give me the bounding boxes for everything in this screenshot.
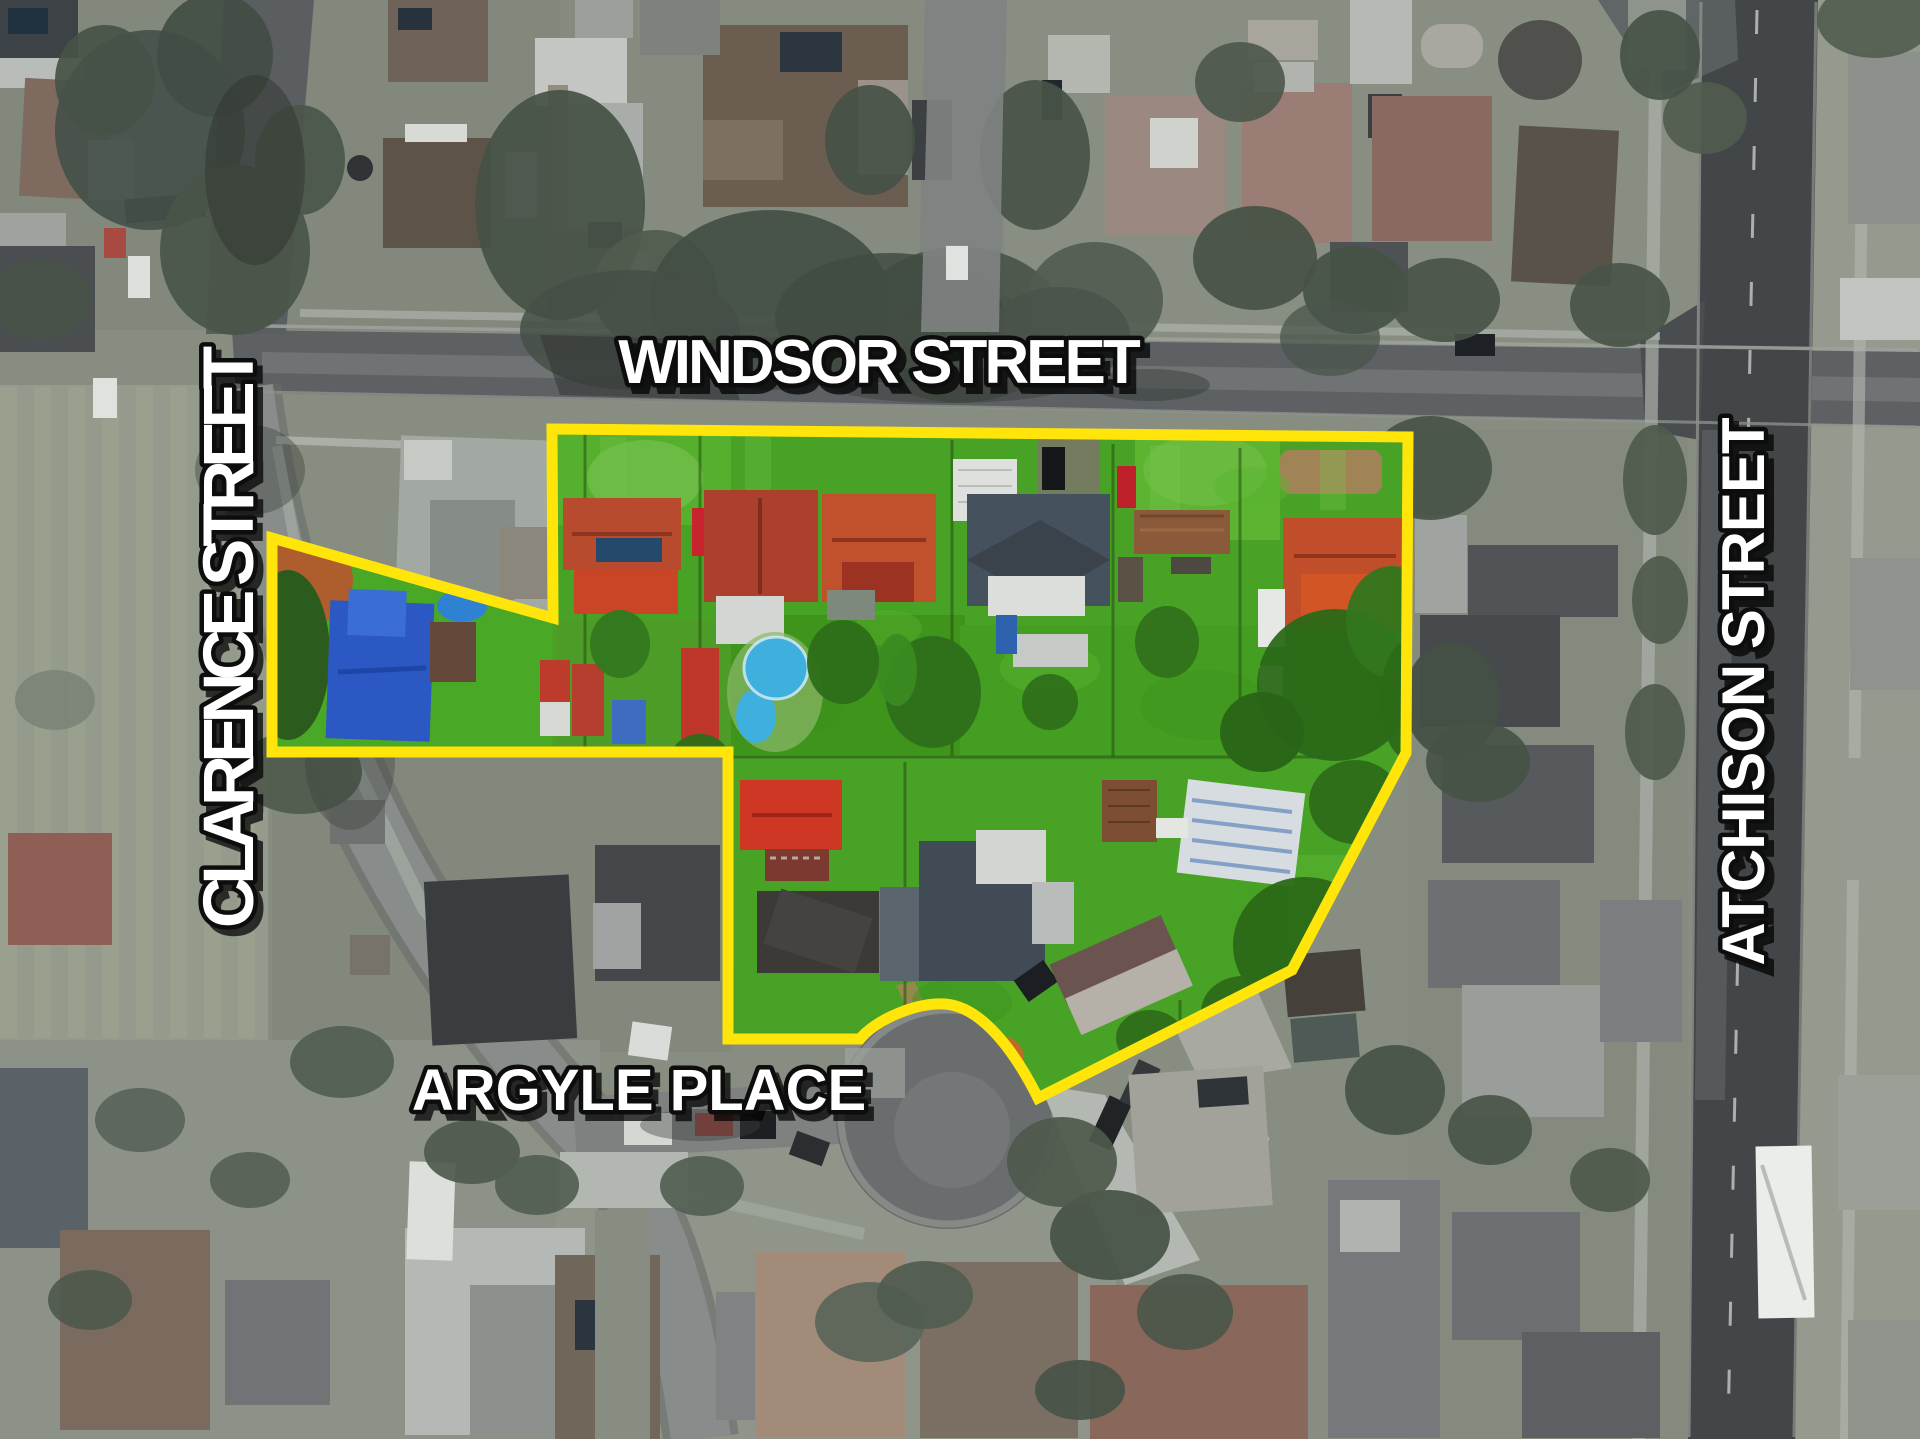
svg-text:ARGYLE PLACE: ARGYLE PLACE [412,1058,866,1123]
svg-text:ATCHISON STREET: ATCHISON STREET [1710,418,1777,966]
svg-text:WINDSOR STREET: WINDSOR STREET [618,328,1141,397]
svg-text:CLARENCE STREET: CLARENCE STREET [190,346,269,928]
